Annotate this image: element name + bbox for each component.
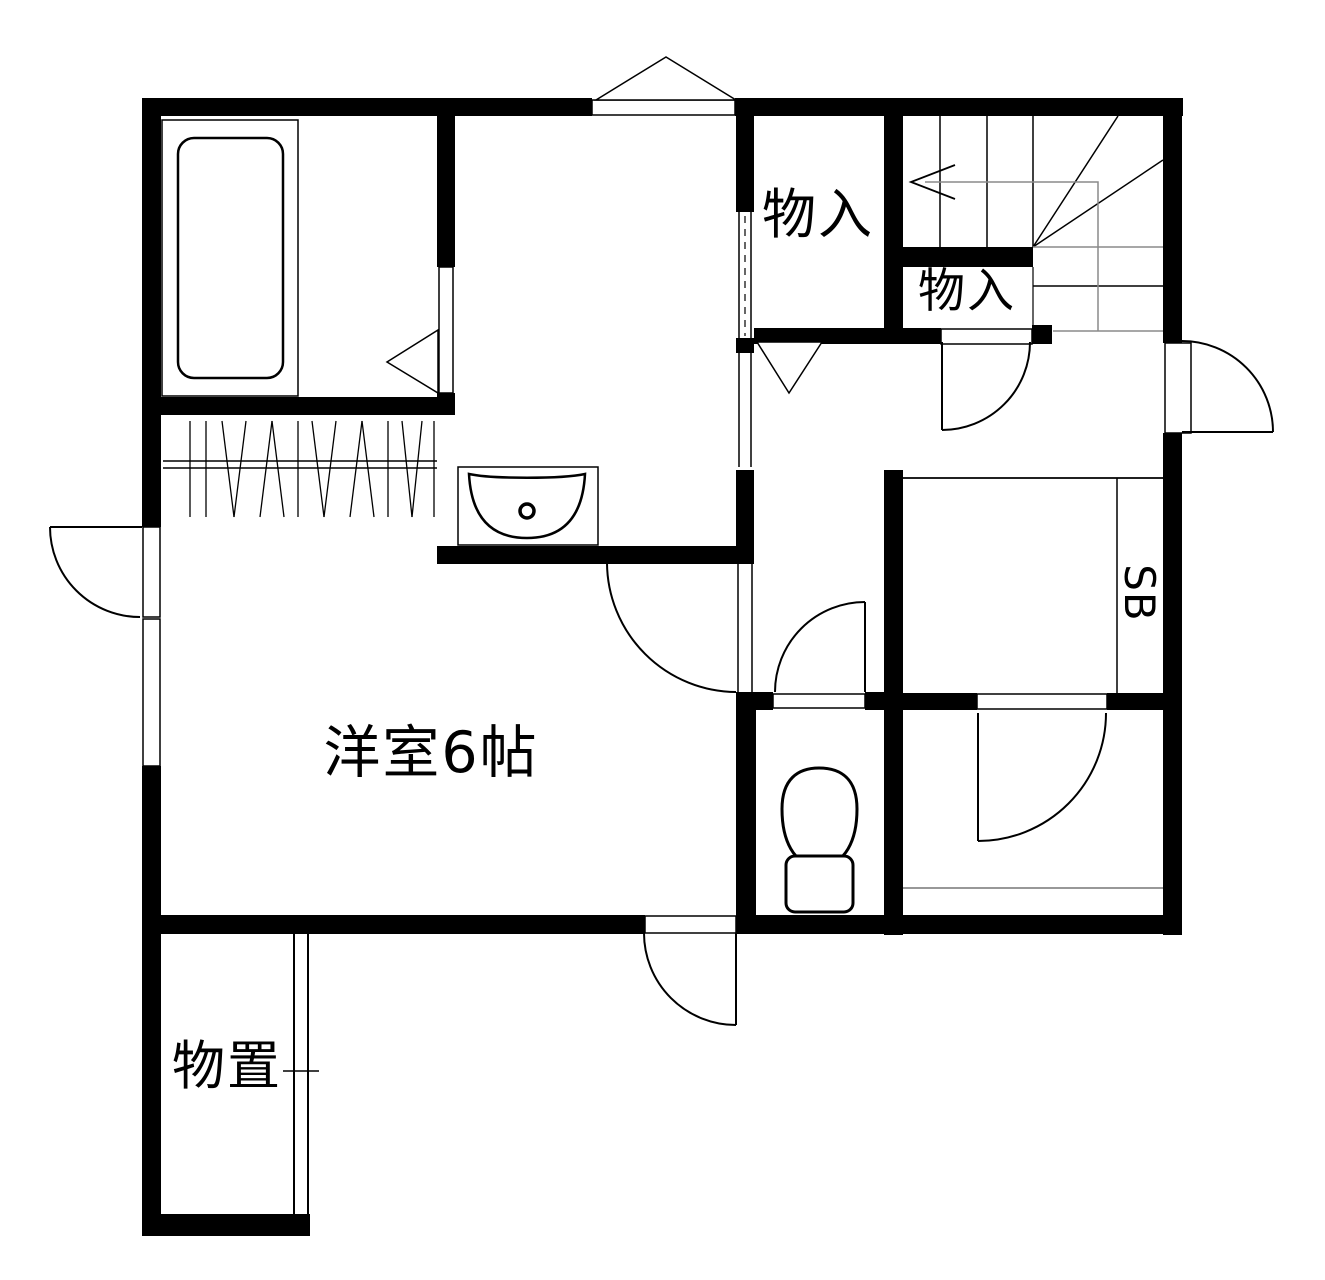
door-swing-arc — [644, 933, 736, 1025]
wall-segment — [142, 915, 645, 934]
wall-segment — [1163, 433, 1182, 935]
room-label-closet-upper: 物入 — [752, 188, 884, 242]
door-panel — [143, 527, 160, 617]
window — [143, 619, 160, 766]
toilet-icon — [782, 768, 857, 912]
door-swing-arc — [50, 527, 140, 617]
door-panel — [773, 694, 865, 708]
door-panel — [1165, 343, 1191, 433]
wall-segment — [735, 98, 1183, 116]
wall-segment — [903, 693, 977, 710]
door-swing-triangle — [387, 330, 438, 393]
room-label-western-room: 洋室6帖 — [275, 725, 587, 782]
toilet-tank — [786, 856, 853, 912]
wall-segment — [736, 692, 756, 915]
wall-segment — [142, 397, 455, 415]
room-label-storage-shed: 物置 — [146, 1040, 308, 1093]
door-swing-arc — [1182, 341, 1273, 432]
room-label-closet-lower: 物入 — [899, 268, 1035, 315]
door-panel — [977, 694, 1107, 709]
toilet-bowl — [782, 768, 857, 866]
wall-segment — [1163, 98, 1182, 343]
wall-segment — [142, 1214, 310, 1236]
wall-segment — [865, 692, 884, 710]
wall-segment — [1107, 693, 1163, 710]
door-swing-arc — [775, 602, 865, 692]
door-swing-arc — [607, 563, 736, 692]
room-label-shoe-box: SB — [1101, 555, 1177, 631]
door-swing-arc — [978, 713, 1106, 841]
wall-segment — [142, 98, 592, 116]
door-panel — [645, 916, 736, 933]
window — [592, 100, 735, 115]
door-panel — [439, 267, 453, 393]
window-triangle — [596, 57, 736, 100]
basin-drain — [520, 504, 534, 518]
openings — [143, 100, 1191, 933]
bathtub-icon — [162, 120, 298, 396]
wall-segment — [884, 116, 903, 267]
washbasin-icon — [458, 467, 598, 545]
wall-segment — [1032, 325, 1052, 344]
door-swing-arc — [942, 342, 1030, 430]
bathtub — [178, 138, 283, 378]
clothes-hanger-rod — [163, 421, 437, 517]
hanger-strokes — [190, 421, 434, 517]
wall-segment — [437, 116, 455, 267]
entry-step-lines — [903, 478, 1163, 888]
wall-segment — [736, 692, 773, 710]
floor-plan: 物入 物入 洋室6帖 物置 SB — [0, 0, 1325, 1280]
wall-segment — [736, 915, 1182, 934]
wall-segment — [736, 338, 754, 353]
wall-segment — [736, 470, 754, 564]
door-swing-triangle — [757, 342, 822, 393]
door-panel — [941, 329, 1032, 344]
wall-segment — [142, 766, 161, 1236]
wall-segment — [884, 470, 903, 935]
wall-segment — [437, 546, 737, 564]
wall-segment — [142, 98, 161, 527]
partitions — [283, 212, 751, 1214]
